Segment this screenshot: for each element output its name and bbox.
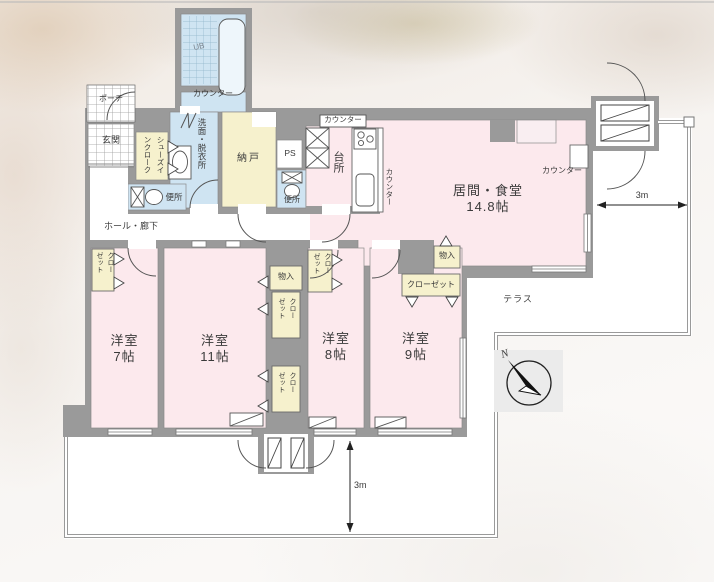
- floorplan-drawing: [0, 0, 714, 582]
- label-bed9-size: 9帖: [370, 347, 462, 362]
- label-bed11-size: 11帖: [164, 349, 266, 364]
- floorplan-image: ポーチ UB カウンター 玄関 シューズインクローク 洗面・脱衣所 納戸 PS …: [0, 0, 714, 582]
- label-ps: PS: [278, 148, 302, 158]
- label-counter-kitchen-side: カウンター: [384, 168, 393, 212]
- label-bed8-name: 洋室: [306, 331, 366, 346]
- label-dim-terrace: 3m: [628, 190, 656, 201]
- label-genkan: 玄関: [92, 135, 130, 146]
- label-living-name: 居間・食堂: [408, 183, 568, 198]
- label-closet-bed11-b: クローゼット: [276, 372, 298, 398]
- label-toilet-1: 便所: [158, 192, 190, 202]
- label-closet-bed9: クローゼット: [400, 280, 462, 289]
- label-washroom: 洗面・脱衣所: [197, 118, 207, 176]
- label-bed7-name: 洋室: [91, 333, 158, 348]
- label-porch: ポーチ: [88, 94, 134, 103]
- label-closet-bed11-a: クローゼット: [276, 298, 298, 324]
- label-closet-bed7: クローゼット: [94, 252, 116, 278]
- label-toilet-2: 便所: [278, 195, 306, 204]
- label-living-size: 14.8帖: [408, 199, 568, 214]
- label-bed8-size: 8帖: [306, 347, 366, 362]
- label-bed9-name: 洋室: [370, 331, 462, 346]
- label-closet-bed8: クローゼット: [311, 253, 333, 279]
- label-storage-bed11: 物入: [270, 272, 302, 281]
- label-hall: ホール・廊下: [95, 221, 167, 232]
- label-shoes-cloak: シューズインクローク: [141, 136, 167, 176]
- label-counter-bath: カウンター: [184, 89, 242, 98]
- label-bed11-name: 洋室: [164, 333, 266, 348]
- label-counter-kitchen-top: カウンター: [321, 116, 365, 125]
- label-counter-living: カウンター: [536, 166, 588, 175]
- label-kitchen: 台所: [331, 151, 344, 183]
- label-storage-living: 物入: [432, 251, 462, 260]
- label-nando: 納戸: [227, 153, 271, 165]
- label-terrace: テラス: [497, 294, 539, 305]
- label-dim-balcony: 3m: [354, 480, 380, 491]
- label-bed7-size: 7帖: [91, 349, 158, 364]
